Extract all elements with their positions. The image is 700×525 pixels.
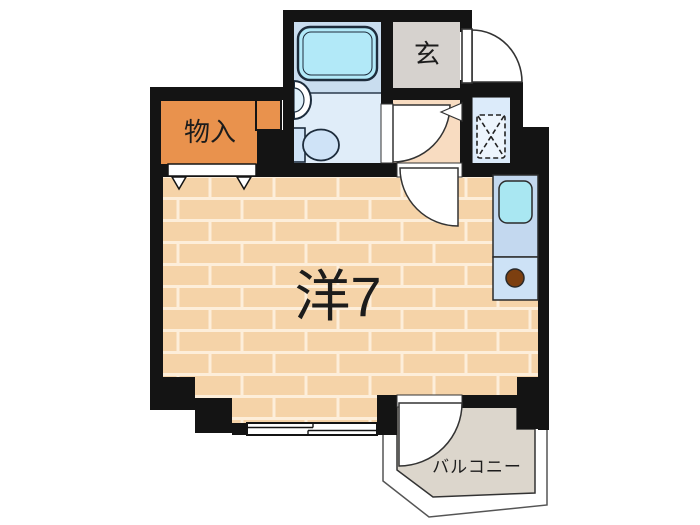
sliding-window-icon xyxy=(247,423,377,435)
balcony-label: バルコニー xyxy=(432,459,522,476)
entrance-label: 玄 xyxy=(414,41,440,67)
entrance-door-icon xyxy=(462,29,522,83)
stove-burner-icon xyxy=(506,269,524,287)
storage-label: 物入 xyxy=(184,119,236,145)
bathtub-icon xyxy=(298,27,377,80)
laundry-space xyxy=(472,97,512,165)
western-room-label: 洋7 xyxy=(294,269,381,325)
toilet-icon xyxy=(291,128,339,162)
kitchen-sink-icon xyxy=(499,181,532,223)
bathroom xyxy=(291,22,381,163)
kitchen xyxy=(493,175,538,300)
floorplan: 洋7 物入 玄 バルコニー xyxy=(0,0,700,525)
floorplan-drawing xyxy=(0,0,700,525)
